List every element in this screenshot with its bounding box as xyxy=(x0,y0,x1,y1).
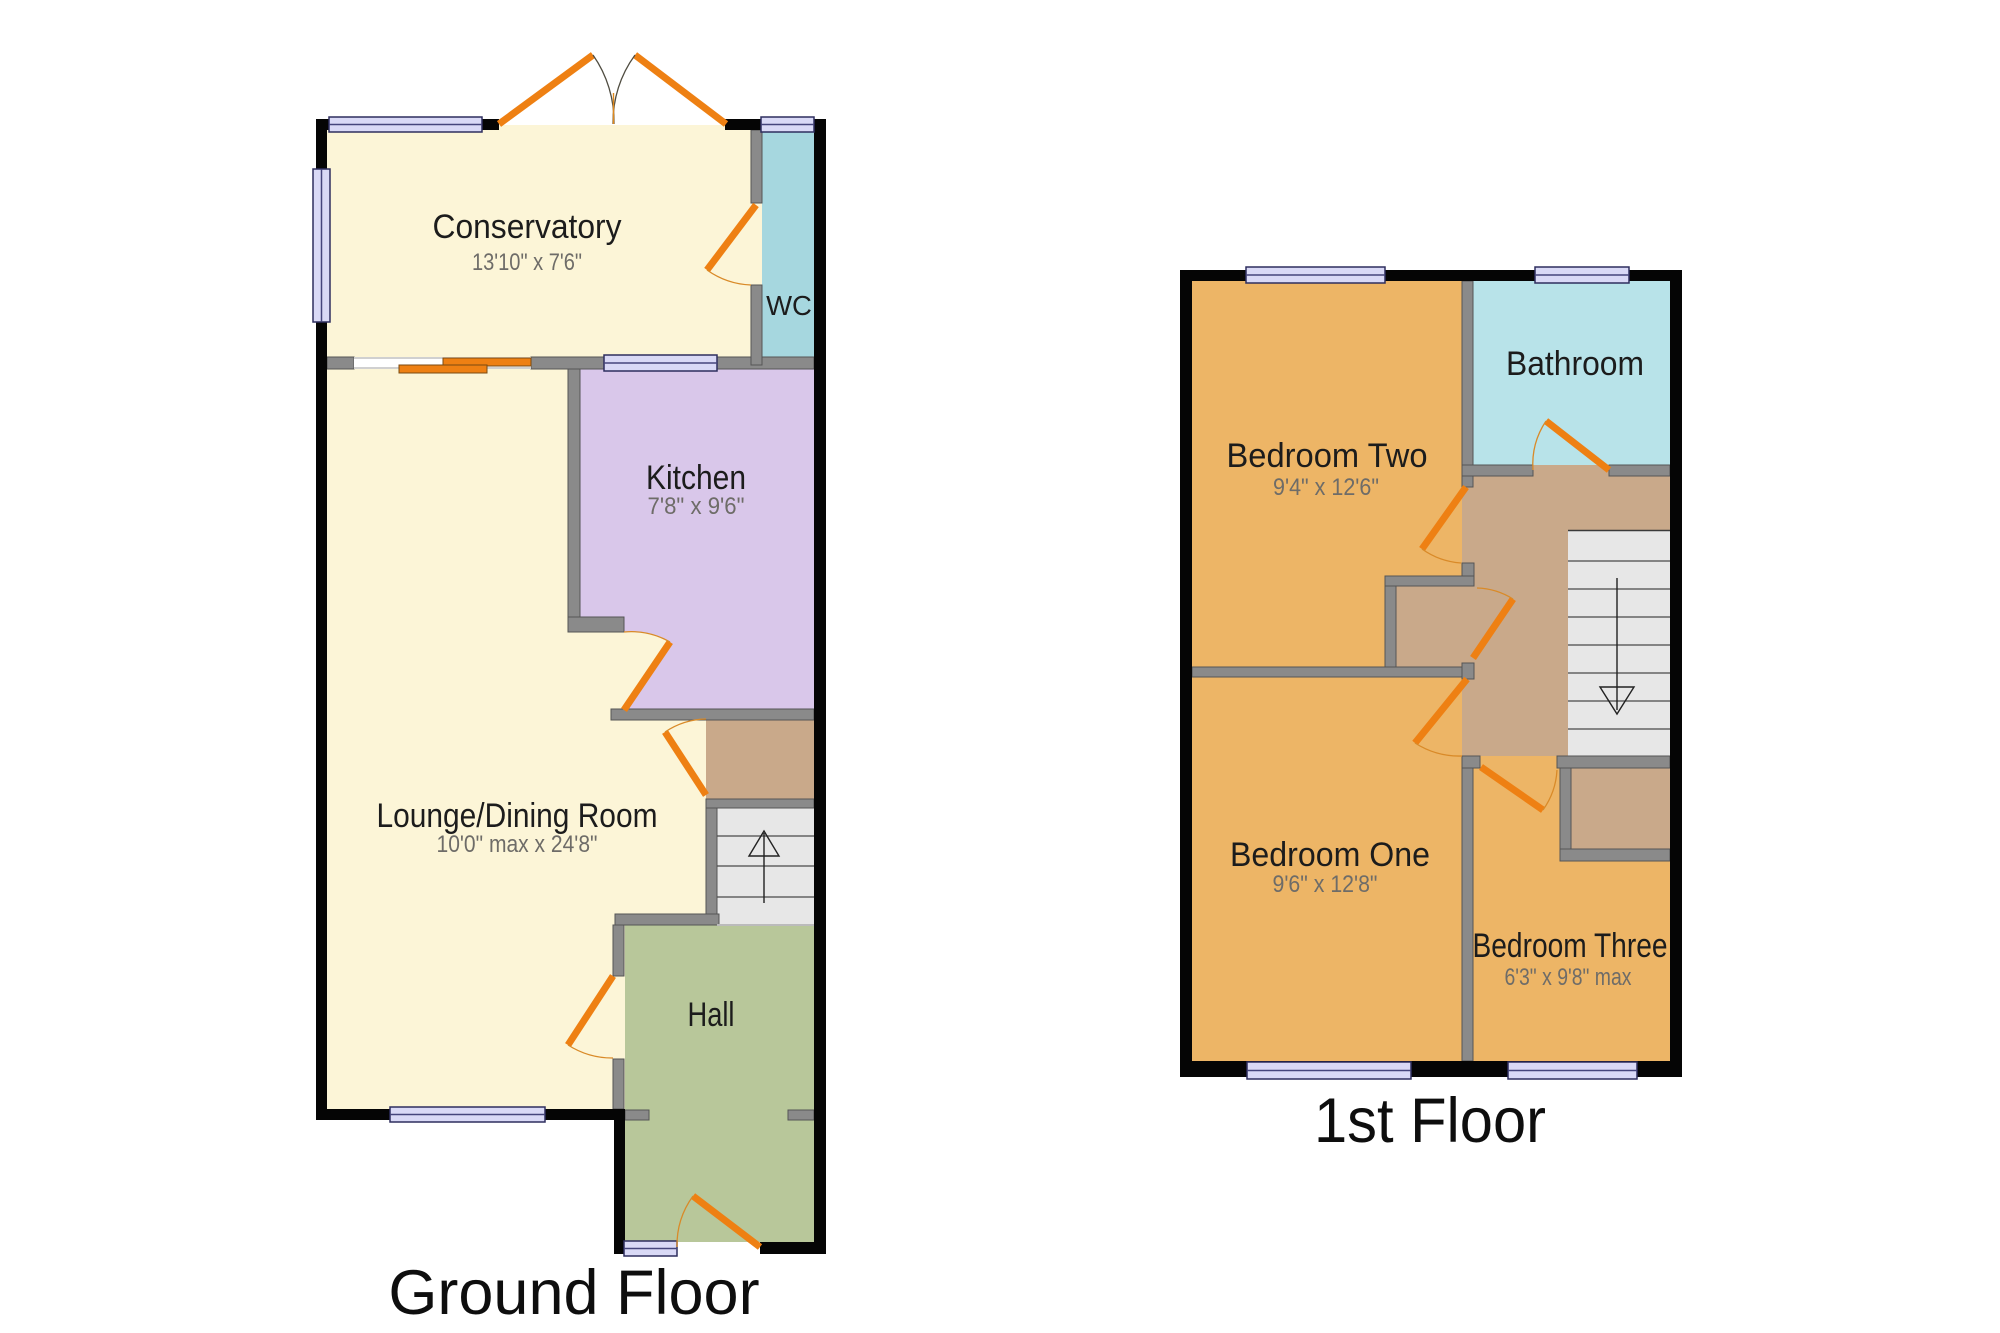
svg-text:7'8" x 9'6": 7'8" x 9'6" xyxy=(648,493,745,520)
svg-text:10'0" max x 24'8": 10'0" max x 24'8" xyxy=(437,831,598,858)
svg-text:WC: WC xyxy=(766,290,812,321)
svg-text:Conservatory: Conservatory xyxy=(433,208,622,246)
svg-text:Bathroom: Bathroom xyxy=(1506,345,1644,383)
svg-text:Ground Floor: Ground Floor xyxy=(388,1258,759,1328)
svg-text:Hall: Hall xyxy=(688,996,735,1034)
svg-text:Bedroom One: Bedroom One xyxy=(1230,836,1430,874)
svg-text:Bedroom Three: Bedroom Three xyxy=(1473,927,1668,965)
svg-text:9'6" x 12'8": 9'6" x 12'8" xyxy=(1273,871,1378,898)
svg-text:Lounge/Dining Room: Lounge/Dining Room xyxy=(377,797,658,835)
svg-text:6'3" x 9'8" max: 6'3" x 9'8" max xyxy=(1505,964,1632,991)
svg-text:Kitchen: Kitchen xyxy=(646,459,746,497)
svg-text:1st Floor: 1st Floor xyxy=(1314,1086,1546,1156)
svg-text:13'10" x 7'6": 13'10" x 7'6" xyxy=(472,249,582,276)
svg-text:Bedroom Two: Bedroom Two xyxy=(1227,437,1428,475)
svg-text:9'4" x 12'6": 9'4" x 12'6" xyxy=(1273,474,1379,501)
